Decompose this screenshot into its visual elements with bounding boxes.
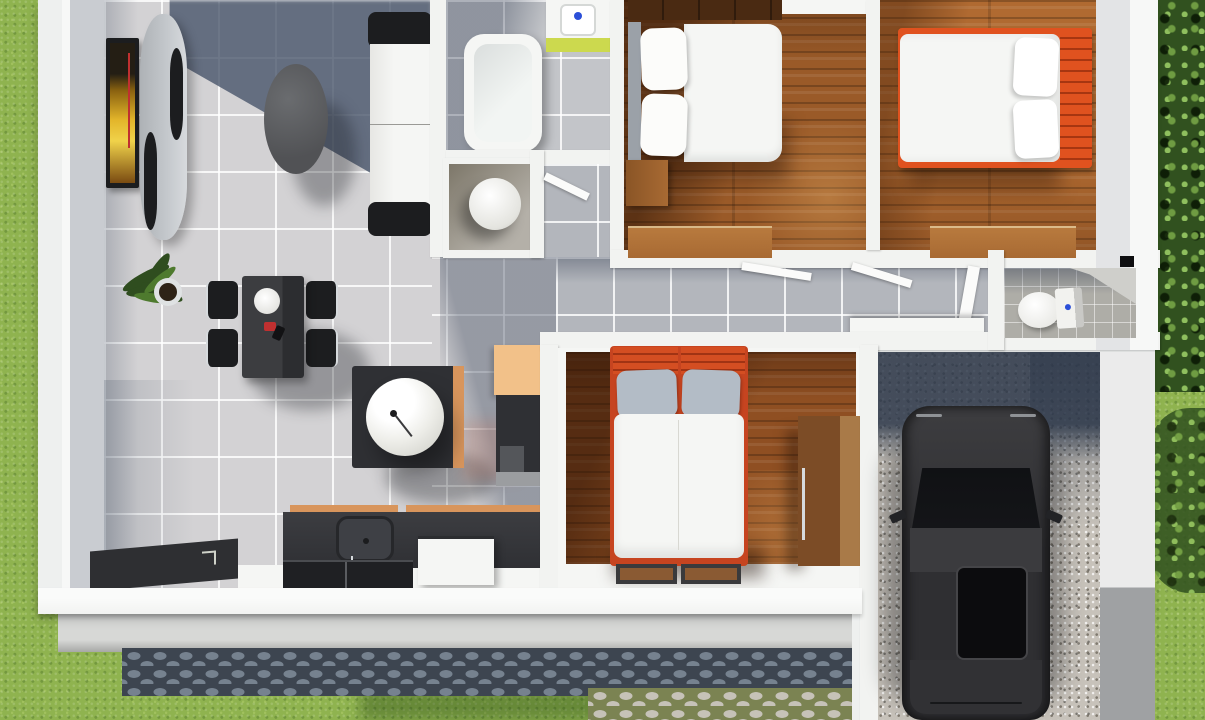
sofa [368,12,432,236]
potted-plant [116,248,200,326]
toilet-bowl [1018,292,1060,328]
wall-bedroom3-carport [860,345,878,720]
carport-east-wall [1100,352,1155,720]
bathtub [464,34,542,152]
vanity-faucet-dot [574,12,582,20]
bed2-pillow [1013,99,1060,159]
coffee-table [264,64,328,174]
wall-corridor-bedroom1 [610,0,624,257]
south-wall [38,588,862,614]
bed1-wall-shelf [628,0,782,20]
wardrobe-handle [802,468,805,540]
bedroom1-north-wall [782,0,866,14]
bedroom3-doormat [616,564,677,584]
sofa-arm-bottom [368,202,432,236]
bed1-pillow [640,93,688,157]
kitchen-sink [336,516,394,562]
dining-chair [306,329,338,367]
wall-kitchen-bedroom3 [540,345,558,600]
tv-screen [110,43,135,183]
console-shelf-dark-bottom [144,132,157,230]
bed2-headboard [1060,28,1092,168]
bathtub-well [474,44,532,142]
basin-faucet-wire [395,415,412,436]
island-basin-sphere [366,378,444,456]
tv-console [140,14,187,240]
car [902,406,1050,720]
bed3-duvet [614,414,744,558]
sink-drain [363,538,369,544]
wall-bedroom1-bedroom2 [866,0,880,250]
toilet-tank [1055,287,1085,329]
bed2-pillow [1013,37,1060,97]
car-rear [910,660,1042,714]
yard-bush-right [1150,408,1205,593]
bed1-pillow [640,27,688,91]
car-roof-rail [1010,414,1036,417]
bed1-duvet [684,24,782,162]
wall-tv [106,38,139,188]
vanity-green-cabinet [546,38,610,52]
west-wall-face [62,0,104,592]
floor-plan-render [0,0,1205,720]
white-appliance [418,536,494,585]
wardrobe [798,416,860,566]
sofa-seam [370,124,430,125]
console-shelf-dark-top [170,48,183,140]
bed1-dresser [628,226,772,258]
bed1-headboard [628,22,641,164]
plate [254,288,280,314]
bed3-pillow [681,369,741,419]
cooktop-panel [283,560,413,590]
round-fixture [469,178,521,230]
kitchen-cabinet-cap [496,472,542,486]
wall-closet-corridor [530,150,544,258]
car-roof-rail [916,414,942,417]
toilet-room-wall-fixture [1120,256,1134,267]
toilet-closet [443,158,540,258]
bed1-nightstand [626,160,668,206]
kitchen-wall-box [500,446,524,472]
sofa-arm-top [368,12,432,48]
car-windshield [912,468,1040,528]
wall-hallway-toiletroom [988,250,1004,350]
vanity-sink [546,0,610,40]
sofa-seat [370,44,430,206]
dining-chair [306,281,338,319]
cooktop-divider [345,562,347,590]
dining-table [242,276,304,378]
tv-art-red-line [128,53,130,148]
dining-chair [206,329,238,367]
duvet-fold [678,420,679,550]
doormat-corner-mark [202,550,216,565]
toilet-flush-button [1065,304,1071,310]
bed3-pillow [616,369,678,419]
kitchen-counter-tan [494,345,542,395]
vanity-basin [560,4,596,36]
island-side-tan [453,366,464,468]
dining-chair [206,281,238,319]
concrete-apron [58,612,852,652]
car-rear-line [930,702,1022,704]
bedroom3-doormat [681,564,741,584]
car-sunroof [956,566,1028,660]
cobblestone-driveway [588,688,855,720]
